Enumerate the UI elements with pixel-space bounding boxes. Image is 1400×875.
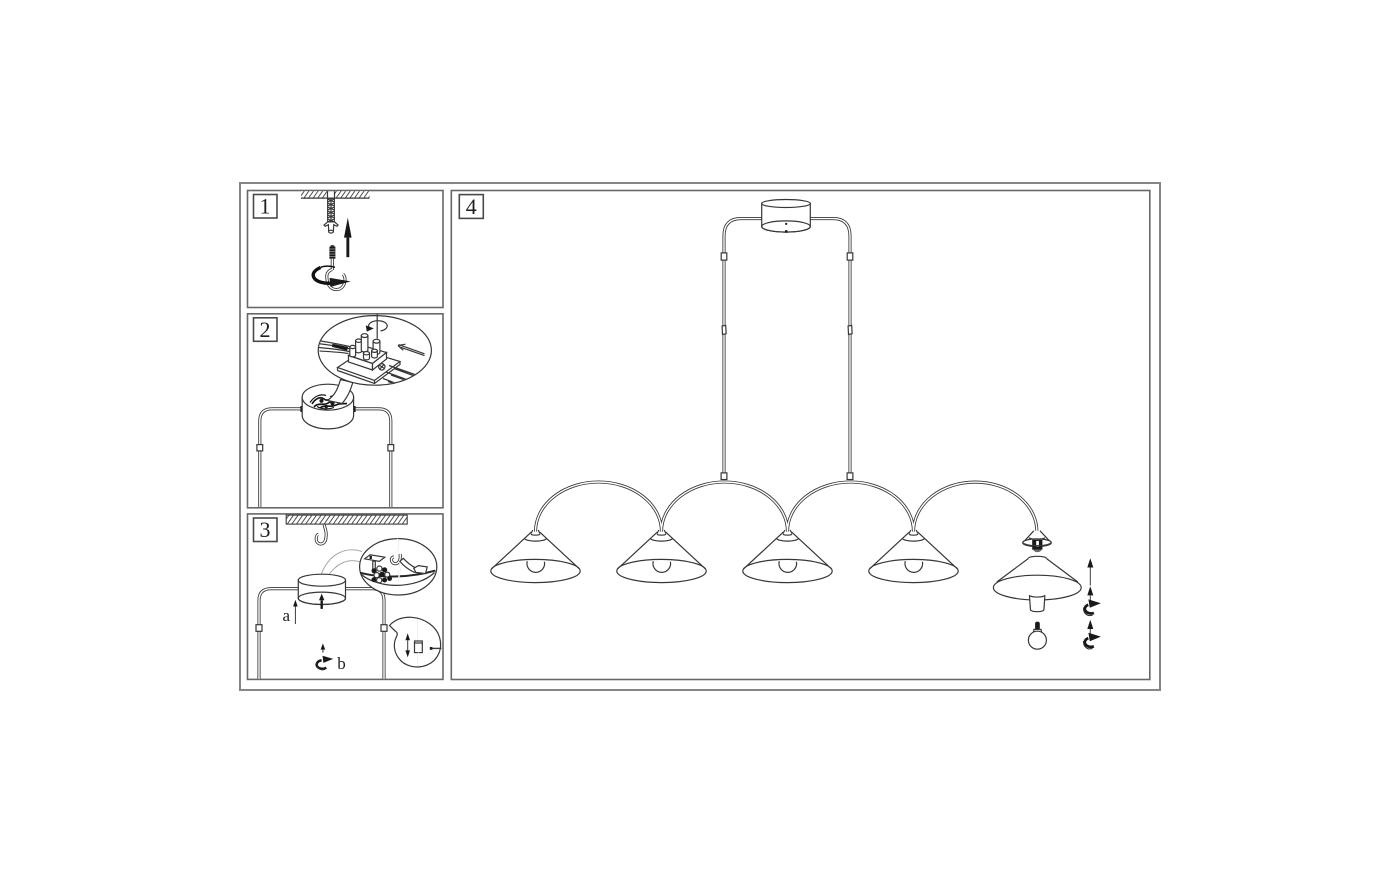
svg-text:4: 4	[466, 194, 477, 219]
svg-text:a: a	[283, 606, 291, 625]
svg-text:3: 3	[260, 517, 271, 542]
svg-text:b: b	[337, 654, 346, 673]
svg-text:1: 1	[260, 194, 271, 219]
svg-text:2: 2	[260, 317, 271, 342]
